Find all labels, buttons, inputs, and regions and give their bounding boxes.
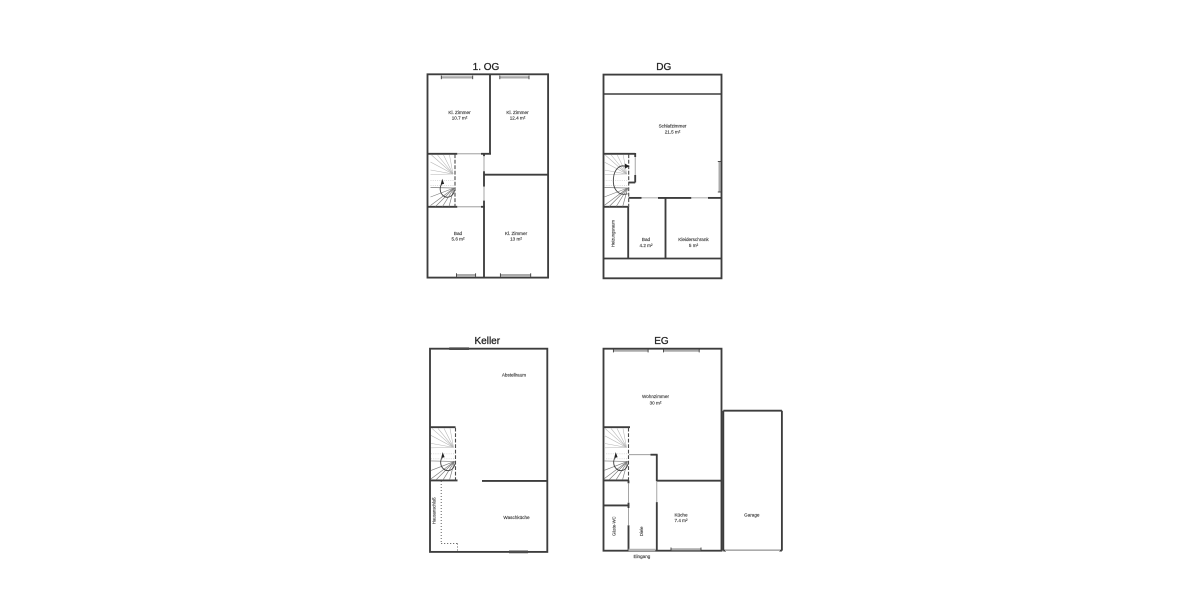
svg-text:Kl. Zimmer: Kl. Zimmer — [505, 231, 528, 236]
svg-text:10.7 m²: 10.7 m² — [452, 116, 468, 121]
svg-text:4.2 m²: 4.2 m² — [639, 243, 652, 248]
svg-text:12.4 m²: 12.4 m² — [510, 116, 526, 121]
svg-text:Waschküche: Waschküche — [503, 515, 530, 520]
svg-text:Kl. Zimmer: Kl. Zimmer — [506, 110, 529, 115]
svg-text:5.6 m²: 5.6 m² — [451, 237, 464, 242]
svg-text:Gäste-WC: Gäste-WC — [612, 516, 617, 536]
svg-text:Wohnzimmer: Wohnzimmer — [642, 394, 669, 399]
svg-text:EG: EG — [654, 336, 669, 347]
svg-text:1. OG: 1. OG — [473, 62, 500, 73]
svg-text:Heizungsraum: Heizungsraum — [610, 219, 615, 247]
svg-text:Bad: Bad — [454, 231, 463, 236]
svg-text:DG: DG — [656, 62, 671, 73]
svg-text:Abstellraum: Abstellraum — [502, 373, 526, 378]
svg-text:Eingang: Eingang — [633, 554, 650, 559]
svg-text:Keller: Keller — [475, 336, 501, 347]
svg-text:5 m²: 5 m² — [689, 243, 699, 248]
svg-text:Bad: Bad — [642, 237, 651, 242]
svg-text:Schlafzimmer: Schlafzimmer — [659, 124, 687, 129]
svg-text:Kl. Zimmer: Kl. Zimmer — [448, 110, 471, 115]
svg-text:21.5 m²: 21.5 m² — [665, 129, 681, 134]
svg-text:Garage: Garage — [744, 513, 760, 518]
svg-text:7.4 m²: 7.4 m² — [674, 518, 687, 523]
svg-text:13 m²: 13 m² — [510, 237, 522, 242]
svg-text:Diele: Diele — [639, 526, 644, 536]
svg-text:Kleiderschrank: Kleiderschrank — [678, 237, 709, 242]
svg-text:Küche: Küche — [674, 513, 687, 518]
svg-text:30 m²: 30 m² — [650, 400, 662, 405]
svg-text:Hausanschluß: Hausanschluß — [432, 497, 437, 524]
